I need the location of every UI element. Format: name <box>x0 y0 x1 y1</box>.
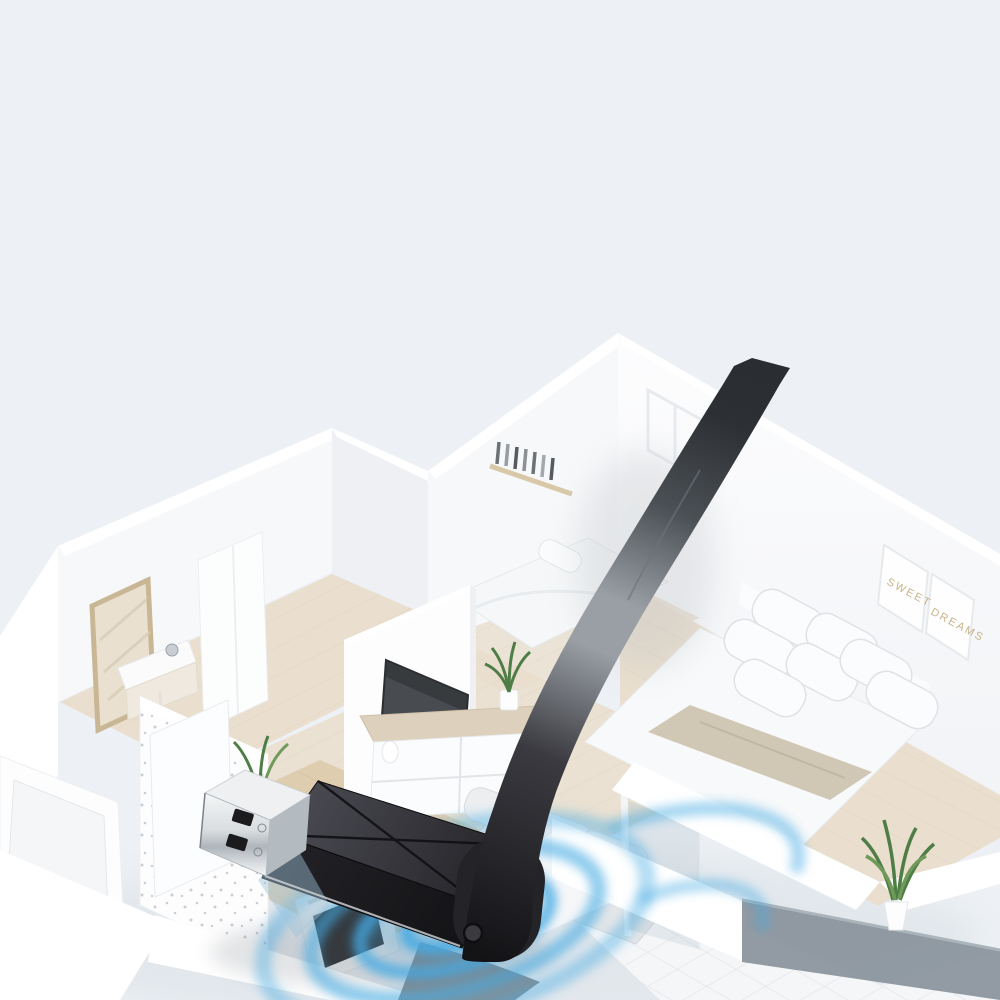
product-scene: SWEET DREAMS <box>0 0 1000 1000</box>
vase <box>382 741 398 763</box>
plant-pot <box>500 690 518 710</box>
house-illustration: SWEET DREAMS <box>0 0 1000 1000</box>
hinge-screw <box>464 924 482 942</box>
decor-object <box>166 644 178 656</box>
